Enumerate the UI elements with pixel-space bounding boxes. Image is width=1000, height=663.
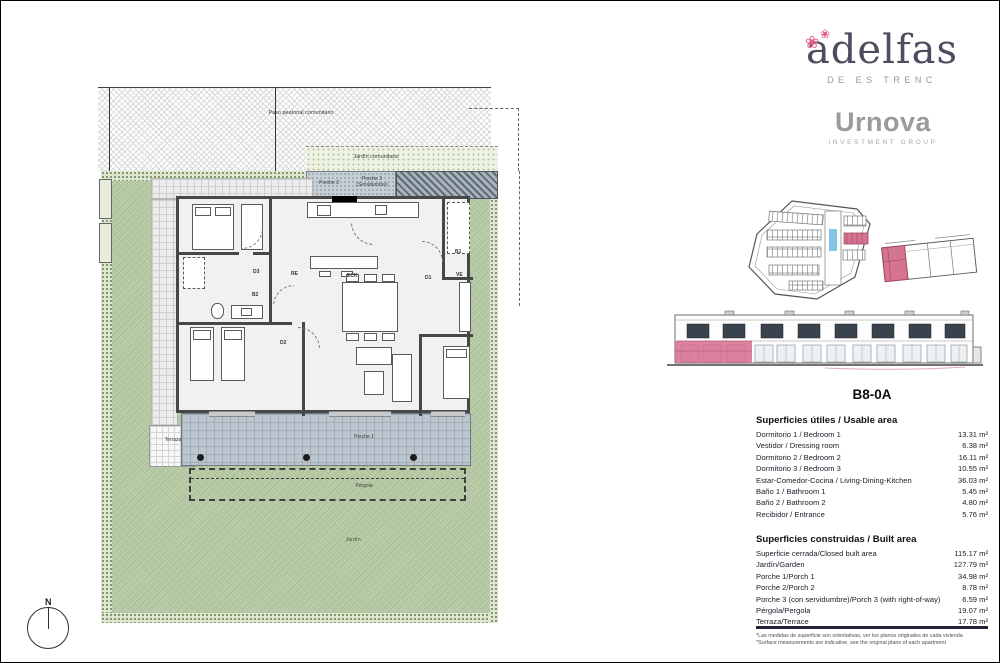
site-plan-key xyxy=(737,189,877,307)
row-value: 13.31 m² xyxy=(958,429,988,440)
wall xyxy=(179,252,239,255)
room-label-ve: VE xyxy=(456,272,463,278)
chair xyxy=(364,333,377,341)
pergola-post xyxy=(197,454,204,461)
room-label-d3: D3 xyxy=(253,269,259,275)
pillow xyxy=(215,207,231,216)
row-value: 5.76 m² xyxy=(962,509,988,520)
plan-sheet: Paso peatonal comunitario Jardín comunit… xyxy=(0,0,1000,663)
chair xyxy=(382,274,395,282)
row-label: Estar-Comedor-Cocina / Living-Dining-Kit… xyxy=(756,475,912,486)
pedestrian-path-label: Paso peatonal comunitario xyxy=(256,110,346,116)
row-label: Vestidor / Dressing room xyxy=(756,440,839,451)
row-label: Recibidor / Entrance xyxy=(756,509,825,520)
row-value: 6.38 m² xyxy=(962,440,988,451)
sliding-door xyxy=(209,411,255,417)
hedge-border-bottom xyxy=(101,613,498,623)
row-label: Dormitorio 3 / Bedroom 3 xyxy=(756,463,841,474)
north-needle xyxy=(48,607,49,629)
built-area-table: Superficies construidas / Built area Sup… xyxy=(756,534,988,628)
built-area-title: Superficies construidas / Built area xyxy=(756,534,988,545)
porch1-area xyxy=(181,413,471,466)
boundary-line xyxy=(275,87,276,171)
footnote-en: *Surface measurements are indicative, se… xyxy=(756,640,996,647)
boundary-line xyxy=(109,87,110,171)
table-row: Porche 1/Porch 134.98 m² xyxy=(756,571,988,582)
row-label: Baño 2 / Bathroom 2 xyxy=(756,497,826,508)
garden-label: Jardín xyxy=(333,537,373,543)
wall xyxy=(179,322,272,325)
urnova-subtitle: INVESTMENT GROUP xyxy=(813,139,953,146)
communal-garden-label: Jardín comunitario xyxy=(341,154,411,160)
room-label-d2: D2 xyxy=(280,340,286,346)
door-arc xyxy=(273,285,315,327)
room-label-b1: B1 xyxy=(455,249,461,255)
footnote-es: *Las medidas de superficie son orientati… xyxy=(756,633,996,640)
flower-icon: ❀ xyxy=(820,27,830,41)
adelfas-logo: ❀ ❀ adelfas DE ES TRENC xyxy=(787,27,977,105)
pillow xyxy=(195,207,211,216)
wall xyxy=(442,199,445,279)
north-arrow: N xyxy=(25,597,73,661)
chair xyxy=(382,333,395,341)
sliding-door xyxy=(329,411,391,417)
shower xyxy=(183,257,205,289)
row-label: Jardín/Garden xyxy=(756,559,805,570)
row-value: 5.45 m² xyxy=(962,486,988,497)
table-row: Baño 2 / Bathroom 24.80 m² xyxy=(756,497,988,508)
row-value: 127.79 m² xyxy=(954,559,988,570)
table-row: Vestidor / Dressing room6.38 m² xyxy=(756,440,988,451)
block-key xyxy=(877,227,981,291)
porch2-label: Porche 2 xyxy=(309,181,349,187)
stove xyxy=(317,205,331,216)
chair xyxy=(364,274,377,282)
dining-table xyxy=(342,282,398,332)
adelfas-subtitle: DE ES TRENC xyxy=(787,75,977,85)
sofa xyxy=(356,347,392,365)
row-value: 8.78 m² xyxy=(962,582,988,593)
pergola-area xyxy=(189,468,466,501)
kitchen-island xyxy=(310,256,378,269)
row-label: Baño 1 / Bathroom 1 xyxy=(756,486,826,497)
building-elevation xyxy=(665,305,987,375)
wall xyxy=(253,252,272,255)
chair xyxy=(346,333,359,341)
wall xyxy=(269,199,272,324)
row-label: Dormitorio 2 / Bedroom 2 xyxy=(756,452,841,463)
table-row: Porche 2/Porch 28.78 m² xyxy=(756,582,988,593)
paved-apron-left xyxy=(151,199,178,429)
table-row: Dormitorio 3 / Bedroom 310.55 m² xyxy=(756,463,988,474)
wall xyxy=(272,322,292,325)
table-row: Dormitorio 1 / Bedroom 113.31 m² xyxy=(756,429,988,440)
flower-icon: ❀ xyxy=(805,33,819,53)
pergola-beam-line xyxy=(191,478,464,479)
usable-area-title: Superficies útiles / Usable area xyxy=(756,415,988,426)
pergola-post xyxy=(303,454,310,461)
urnova-wordmark: Urnova xyxy=(813,107,953,138)
door-arc xyxy=(276,327,320,371)
footer-rule xyxy=(756,626,988,629)
north-label: N xyxy=(45,597,52,607)
table-row: Dormitorio 2 / Bedroom 216.11 m² xyxy=(756,452,988,463)
wardrobe xyxy=(459,282,471,332)
table-row: Porche 3 (con servidumbre)/Porch 3 (with… xyxy=(756,594,988,605)
shower xyxy=(447,202,470,254)
pillow xyxy=(224,330,242,340)
toilet xyxy=(211,303,224,319)
porch3-label: Porche 3 (Servidumbre) xyxy=(351,177,393,188)
planter xyxy=(99,223,112,263)
wall xyxy=(419,334,473,337)
unit-title: B8-0A xyxy=(756,387,988,402)
room-label-re: RE xyxy=(291,271,298,277)
table-row: Superficie cerrada/Closed built area115.… xyxy=(756,548,988,559)
wall xyxy=(419,334,422,416)
row-label: Porche 1/Porch 1 xyxy=(756,571,815,582)
planter xyxy=(99,179,112,219)
house-footprint: D3 B2 D2 RE ECK D1 VE B1 xyxy=(176,196,470,413)
row-label: Porche 2/Porch 2 xyxy=(756,582,815,593)
door-arc xyxy=(401,241,443,283)
row-label: Superficie cerrada/Closed built area xyxy=(756,548,877,559)
row-value: 16.11 m² xyxy=(959,452,988,463)
pillow xyxy=(193,330,211,340)
sink xyxy=(241,308,252,316)
coffee-table xyxy=(364,371,384,395)
dashed-parcel-line xyxy=(519,171,520,306)
pergola-post xyxy=(410,454,417,461)
stool xyxy=(319,271,331,277)
table-row: Estar-Comedor-Cocina / Living-Dining-Kit… xyxy=(756,475,988,486)
row-value: 36.03 m² xyxy=(958,475,988,486)
row-value: 6.59 m² xyxy=(962,594,988,605)
table-row: Recibidor / Entrance5.76 m² xyxy=(756,509,988,520)
row-value: 34.98 m² xyxy=(958,571,988,582)
table-row: Baño 1 / Bathroom 15.45 m² xyxy=(756,486,988,497)
neighbour-unit-hatch xyxy=(396,171,498,199)
sliding-door xyxy=(431,411,465,417)
row-value: 4.80 m² xyxy=(962,497,988,508)
row-label: Pérgola/Pergola xyxy=(756,605,810,616)
floor-plan: Paso peatonal comunitario Jardín comunit… xyxy=(1,1,561,663)
row-label: Porche 3 (con servidumbre)/Porch 3 (with… xyxy=(756,594,940,605)
kitchen-sink xyxy=(375,205,387,215)
row-value: 115.17 m² xyxy=(954,548,988,559)
sofa xyxy=(392,354,412,402)
pillow xyxy=(446,349,467,358)
row-label: Dormitorio 1 / Bedroom 1 xyxy=(756,429,841,440)
porch1-label: Porche 1 xyxy=(341,435,387,441)
room-label-d1: D1 xyxy=(425,275,431,281)
row-value: 10.55 m² xyxy=(958,463,988,474)
table-row: Jardín/Garden127.79 m² xyxy=(756,559,988,570)
hedge-border-right xyxy=(490,171,498,623)
usable-area-table: Superficies útiles / Usable area Dormito… xyxy=(756,415,988,520)
room-label-eck: ECK xyxy=(347,273,358,279)
pergola-label: Pérgola xyxy=(341,484,387,490)
room-label-b2: B2 xyxy=(252,292,258,298)
table-row: Pérgola/Pergola19.07 m² xyxy=(756,605,988,616)
row-value: 19.07 m² xyxy=(958,605,988,616)
urnova-logo: Urnova INVESTMENT GROUP xyxy=(813,107,953,153)
